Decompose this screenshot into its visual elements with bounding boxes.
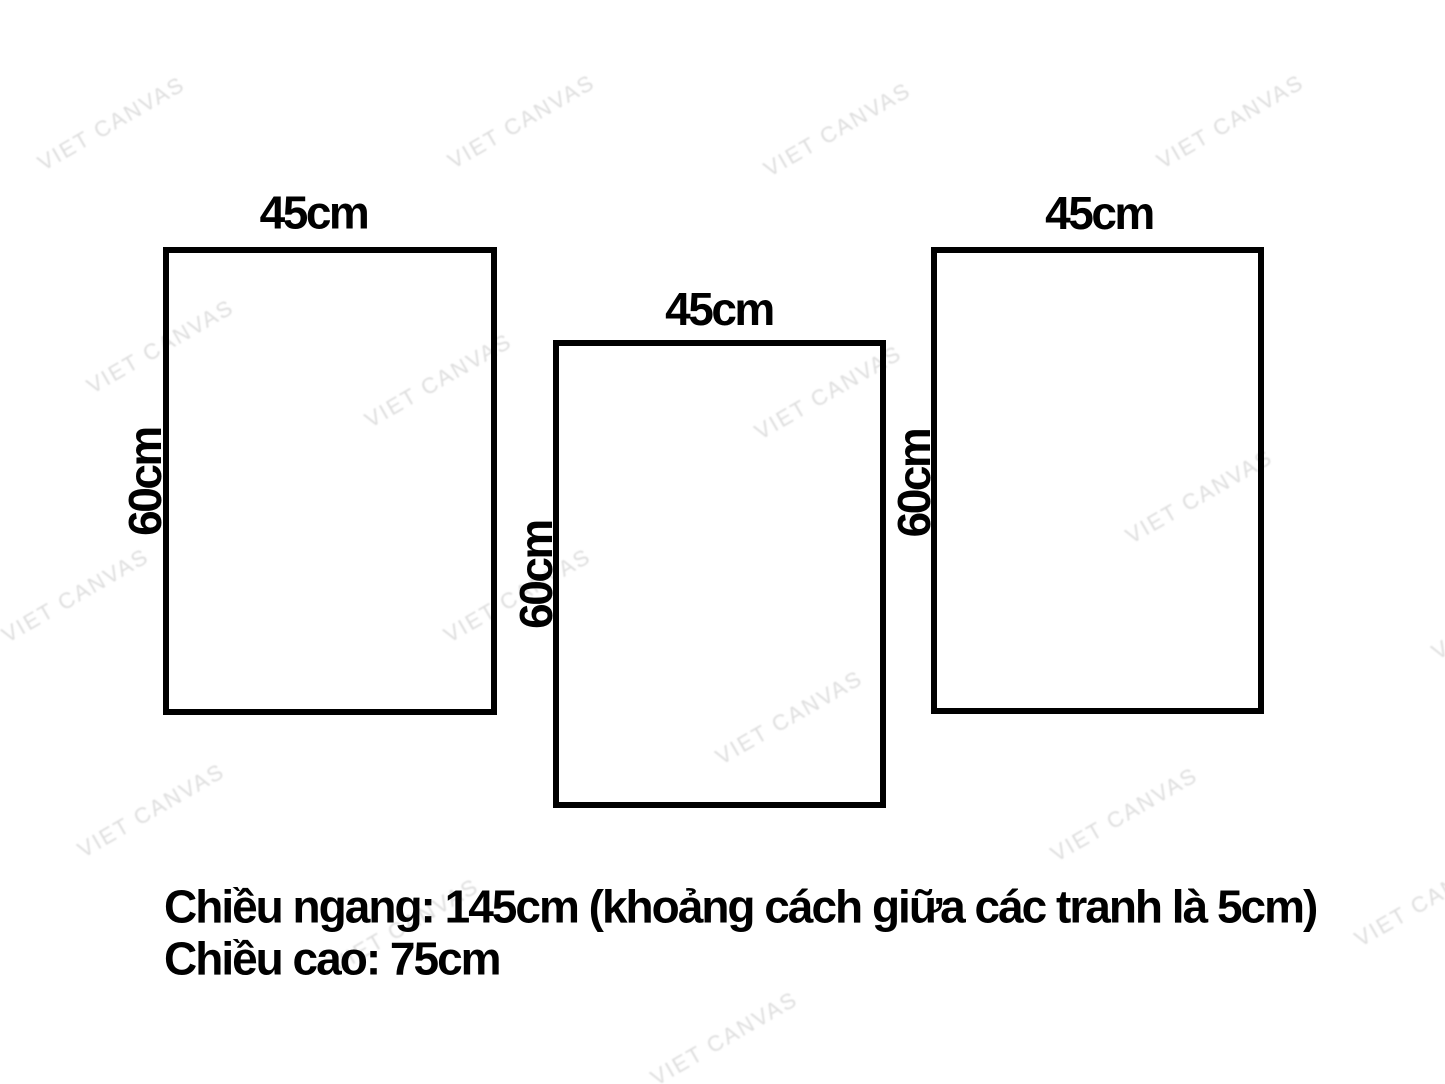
svg-text:60cm: 60cm: [119, 428, 171, 536]
svg-text:45cm: 45cm: [665, 283, 773, 335]
svg-text:45cm: 45cm: [1045, 187, 1153, 239]
svg-text:60cm: 60cm: [888, 429, 940, 537]
svg-text:Chiều cao: 75cm: Chiều cao: 75cm: [164, 933, 500, 985]
svg-text:Chiều ngang: 145cm (khoảng các: Chiều ngang: 145cm (khoảng cách giữa các…: [164, 881, 1317, 933]
svg-text:60cm: 60cm: [510, 521, 562, 629]
svg-text:45cm: 45cm: [260, 187, 368, 239]
